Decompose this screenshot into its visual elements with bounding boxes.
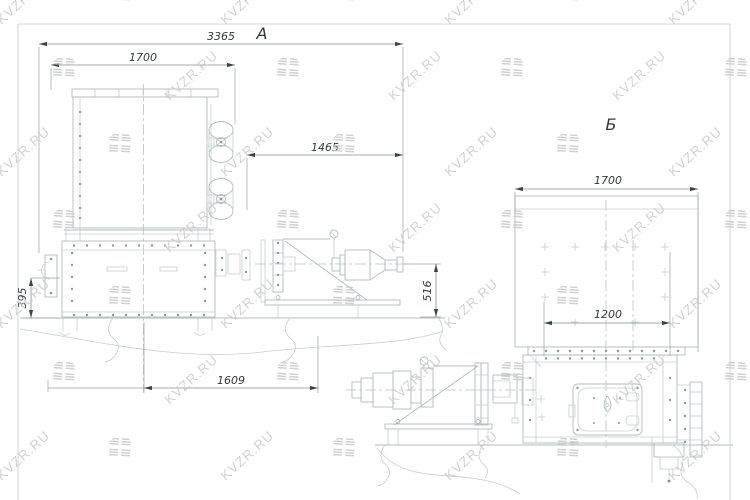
spring-hanger-a1 [105, 318, 118, 362]
drive-base-bar-a [265, 300, 400, 305]
ground-line-b [375, 445, 733, 499]
drawing-sheet: 3365 1700 1465 395 516 [0, 0, 750, 500]
dimensions-b: 1700 1200 [515, 174, 698, 356]
drive-mount-a [216, 240, 283, 302]
view-b-label: Б [606, 115, 617, 134]
cooler-core-b [515, 196, 698, 347]
door-latch [569, 405, 575, 417]
dim-drive-axis-height-a: 516 [421, 281, 434, 302]
door-handle [604, 396, 611, 412]
dim-cooler-width-a: 1700 [129, 51, 157, 64]
shaft-end-a [397, 257, 403, 272]
spring-hanger-b1 [377, 445, 390, 486]
brace-diagonal-b [394, 366, 478, 425]
dim-drive-reach-a: 1465 [311, 141, 339, 154]
bearing-bracket-b [493, 355, 546, 423]
drawing-canvas: 3365 1700 1465 395 516 [0, 0, 750, 500]
grease-fitting-a [330, 230, 338, 258]
dim-overall-width-a: 3365 [207, 30, 235, 43]
left-lug-a [38, 255, 57, 297]
coupling-hub-a [345, 250, 370, 280]
ground-line-a [20, 318, 446, 362]
access-door [569, 384, 642, 435]
cooler-support-a [64, 228, 214, 241]
view-a-label: А [256, 24, 268, 43]
spring-hanger-a2 [282, 318, 295, 362]
cooler-core-a [72, 89, 218, 228]
dim-base-length-a: 1609 [217, 374, 245, 387]
screen-body-a [38, 241, 215, 335]
dim-flange-span-b: 1200 [594, 308, 622, 321]
drive-assembly-b [345, 355, 546, 445]
screen-body-b [523, 355, 677, 443]
grease-fitting-b [420, 357, 428, 368]
bottom-flange-b [528, 347, 685, 355]
dim-frame-height-a: 395 [16, 288, 29, 309]
bolt-rows-a [71, 244, 206, 316]
dim-cooler-width-b: 1700 [594, 174, 622, 187]
sheet-border [18, 24, 730, 500]
spring-hanger-b2 [479, 445, 488, 478]
view-a: 3365 1700 1465 395 516 [16, 24, 446, 393]
